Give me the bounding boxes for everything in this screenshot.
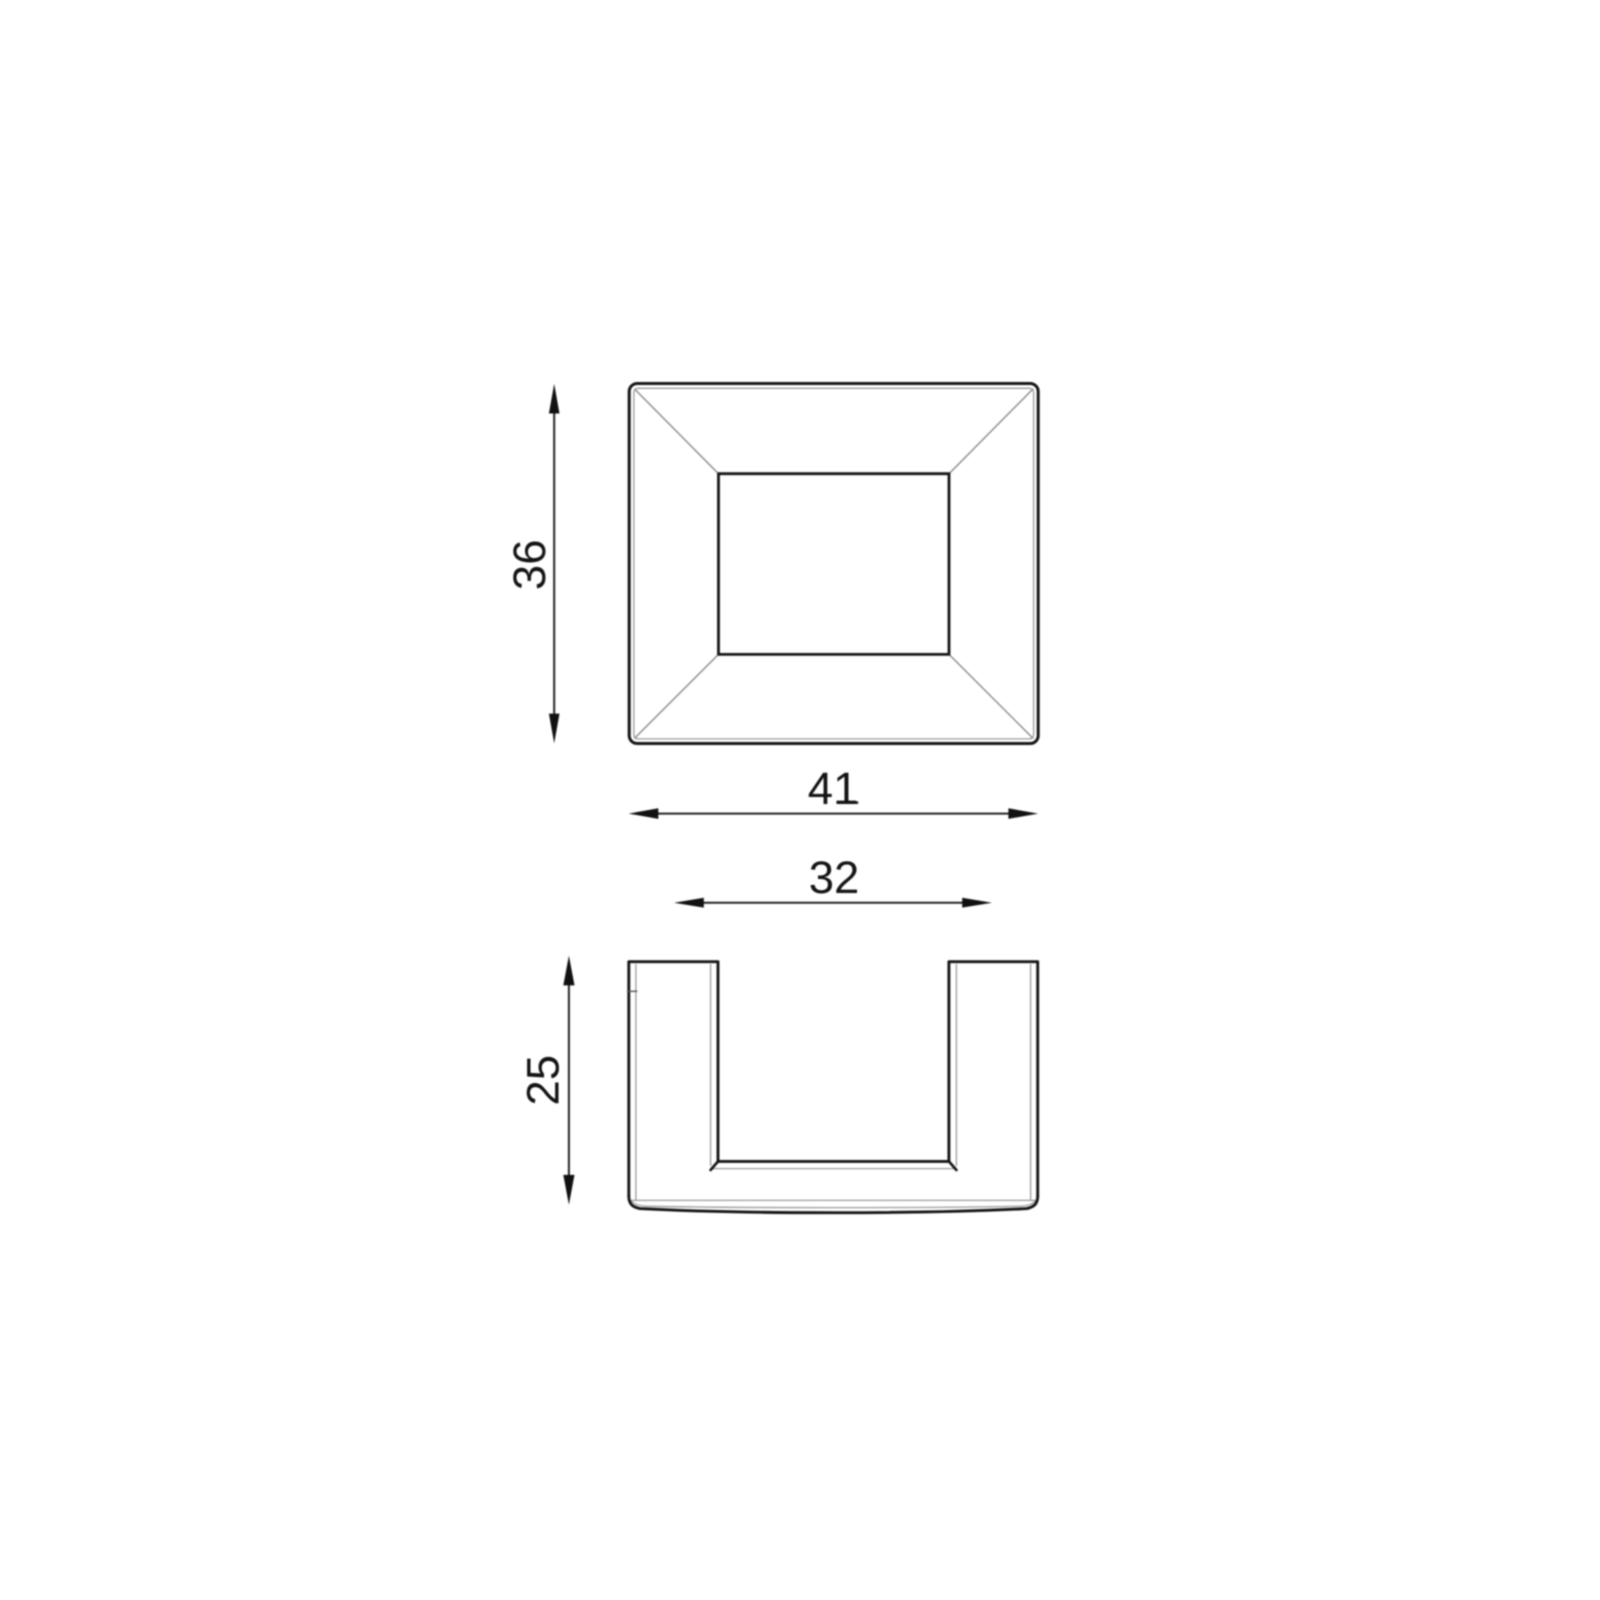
svg-text:25: 25 bbox=[518, 1055, 569, 1106]
svg-text:32: 32 bbox=[809, 852, 860, 903]
svg-text:41: 41 bbox=[808, 763, 859, 814]
svg-text:36: 36 bbox=[504, 539, 555, 590]
